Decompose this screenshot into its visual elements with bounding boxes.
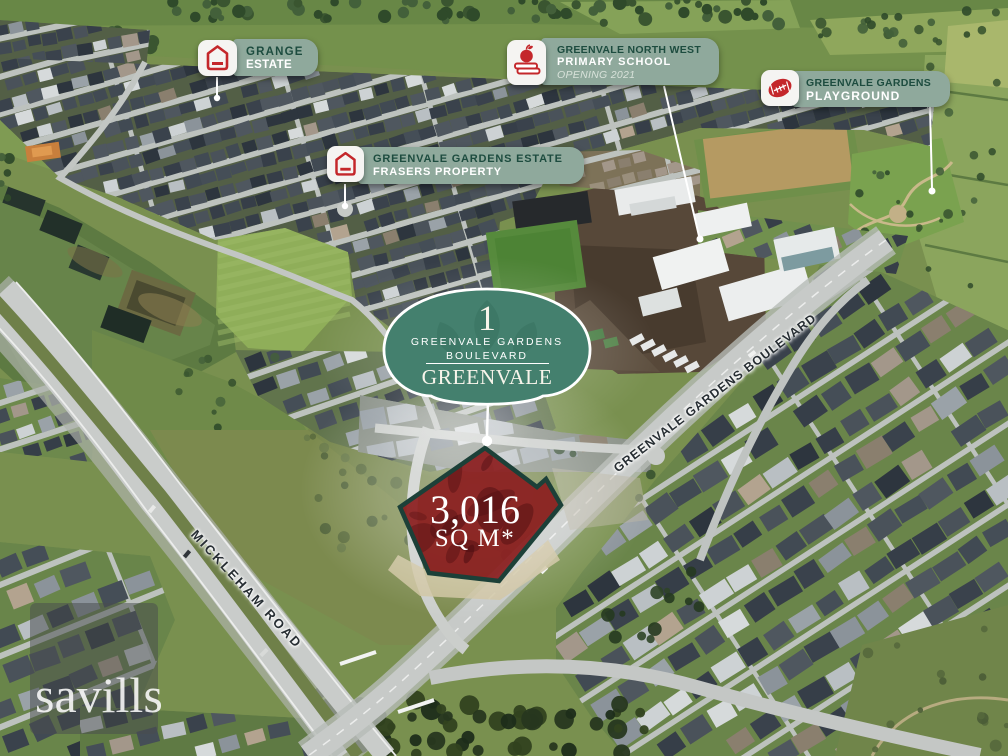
svg-text:SQ M*: SQ M* (435, 525, 515, 552)
svg-text:BOULEVARD: BOULEVARD (446, 350, 528, 362)
svg-text:GREENVALE: GREENVALE (422, 365, 553, 389)
svg-text:1: 1 (478, 298, 496, 338)
svg-text:GREENVALE GARDENS: GREENVALE GARDENS (411, 336, 563, 348)
